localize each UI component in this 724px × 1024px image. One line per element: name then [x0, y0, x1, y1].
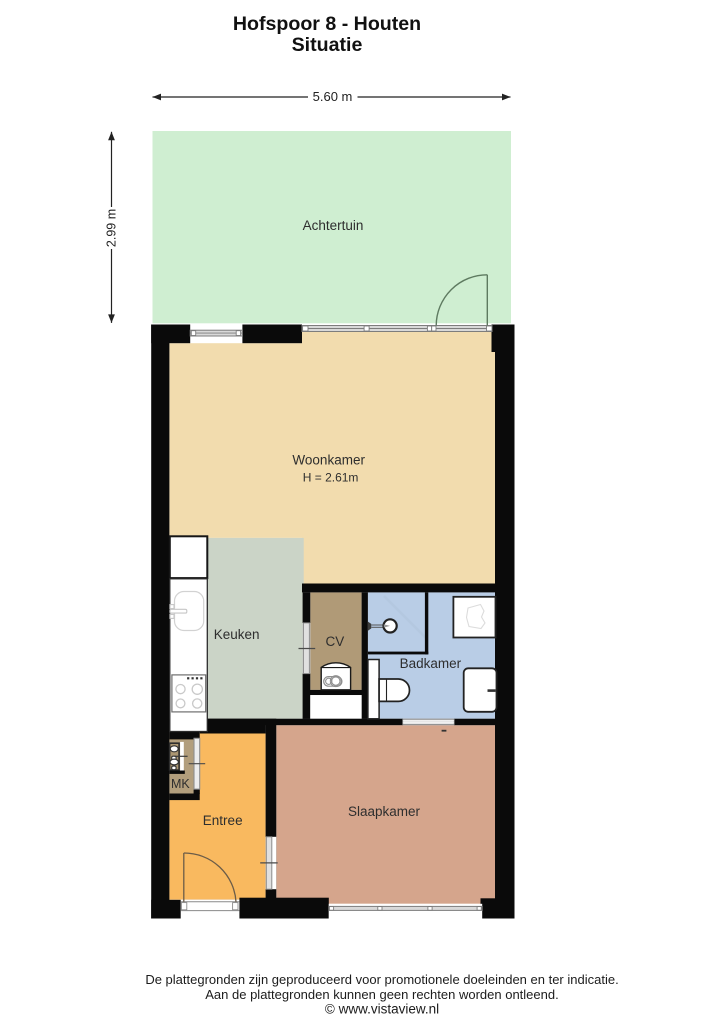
- svg-text:2.99 m: 2.99 m: [105, 209, 119, 247]
- svg-text:5.60 m: 5.60 m: [313, 89, 353, 104]
- svg-text:Entree: Entree: [203, 813, 243, 828]
- svg-text:Situatie: Situatie: [292, 34, 363, 56]
- svg-text:Achtertuin: Achtertuin: [303, 218, 364, 233]
- svg-text:© www.vistaview.nl: © www.vistaview.nl: [325, 1002, 439, 1017]
- svg-text:MK: MK: [171, 777, 190, 791]
- svg-text:CV: CV: [326, 634, 345, 649]
- svg-text:H = 2.61m: H = 2.61m: [303, 471, 359, 485]
- svg-text:Keuken: Keuken: [214, 627, 260, 642]
- svg-text:Hofspoor 8 - Houten: Hofspoor 8 - Houten: [233, 13, 421, 35]
- svg-text:De plattegronden zijn geproduc: De plattegronden zijn geproduceerd voor …: [145, 972, 618, 987]
- svg-text:Aan de plattegronden kunnen ge: Aan de plattegronden kunnen geen rechten…: [205, 987, 558, 1002]
- svg-text:Slaapkamer: Slaapkamer: [348, 804, 421, 819]
- svg-text:Badkamer: Badkamer: [400, 656, 462, 671]
- svg-text:Woonkamer: Woonkamer: [292, 453, 365, 468]
